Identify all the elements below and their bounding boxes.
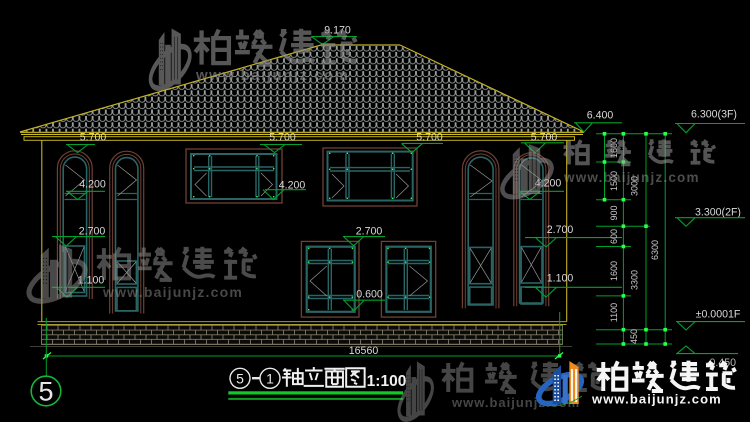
svg-text:16560: 16560 — [349, 345, 379, 357]
svg-text:6.400: 6.400 — [587, 110, 614, 122]
svg-text:0.600: 0.600 — [356, 289, 383, 301]
svg-text:3300: 3300 — [630, 270, 640, 290]
svg-text:900: 900 — [609, 205, 619, 220]
svg-text:www.baijunjz.com: www.baijunjz.com — [102, 284, 243, 300]
svg-text:6300: 6300 — [650, 240, 660, 260]
svg-text:6.300(3F): 6.300(3F) — [691, 109, 737, 121]
svg-text:5: 5 — [236, 370, 244, 386]
svg-text:450: 450 — [629, 329, 639, 344]
svg-text:2.700: 2.700 — [79, 226, 106, 238]
svg-text:3.300(2F): 3.300(2F) — [695, 207, 741, 219]
svg-text:www.baijunjz.com: www.baijunjz.com — [195, 67, 349, 84]
svg-text:1.100: 1.100 — [547, 273, 574, 285]
svg-text:600: 600 — [609, 229, 619, 244]
svg-text:1: 1 — [266, 370, 274, 386]
svg-text:2.700: 2.700 — [547, 224, 574, 236]
svg-text:www.baijunjz.com: www.baijunjz.com — [563, 170, 700, 185]
svg-text:5.700: 5.700 — [80, 132, 107, 144]
svg-text:5.700: 5.700 — [269, 132, 296, 144]
svg-text:1100: 1100 — [609, 303, 619, 322]
svg-text:±0.0001F: ±0.0001F — [696, 309, 741, 321]
svg-text:4.200: 4.200 — [79, 179, 106, 191]
svg-text:5.700: 5.700 — [416, 132, 443, 144]
svg-text:1600: 1600 — [609, 261, 619, 281]
svg-text:5: 5 — [38, 377, 53, 407]
svg-text:5.700: 5.700 — [531, 132, 558, 144]
svg-text:www.baijunjz.com: www.baijunjz.com — [591, 392, 722, 407]
svg-text:2.700: 2.700 — [356, 226, 383, 238]
svg-text:1:100: 1:100 — [367, 373, 407, 390]
